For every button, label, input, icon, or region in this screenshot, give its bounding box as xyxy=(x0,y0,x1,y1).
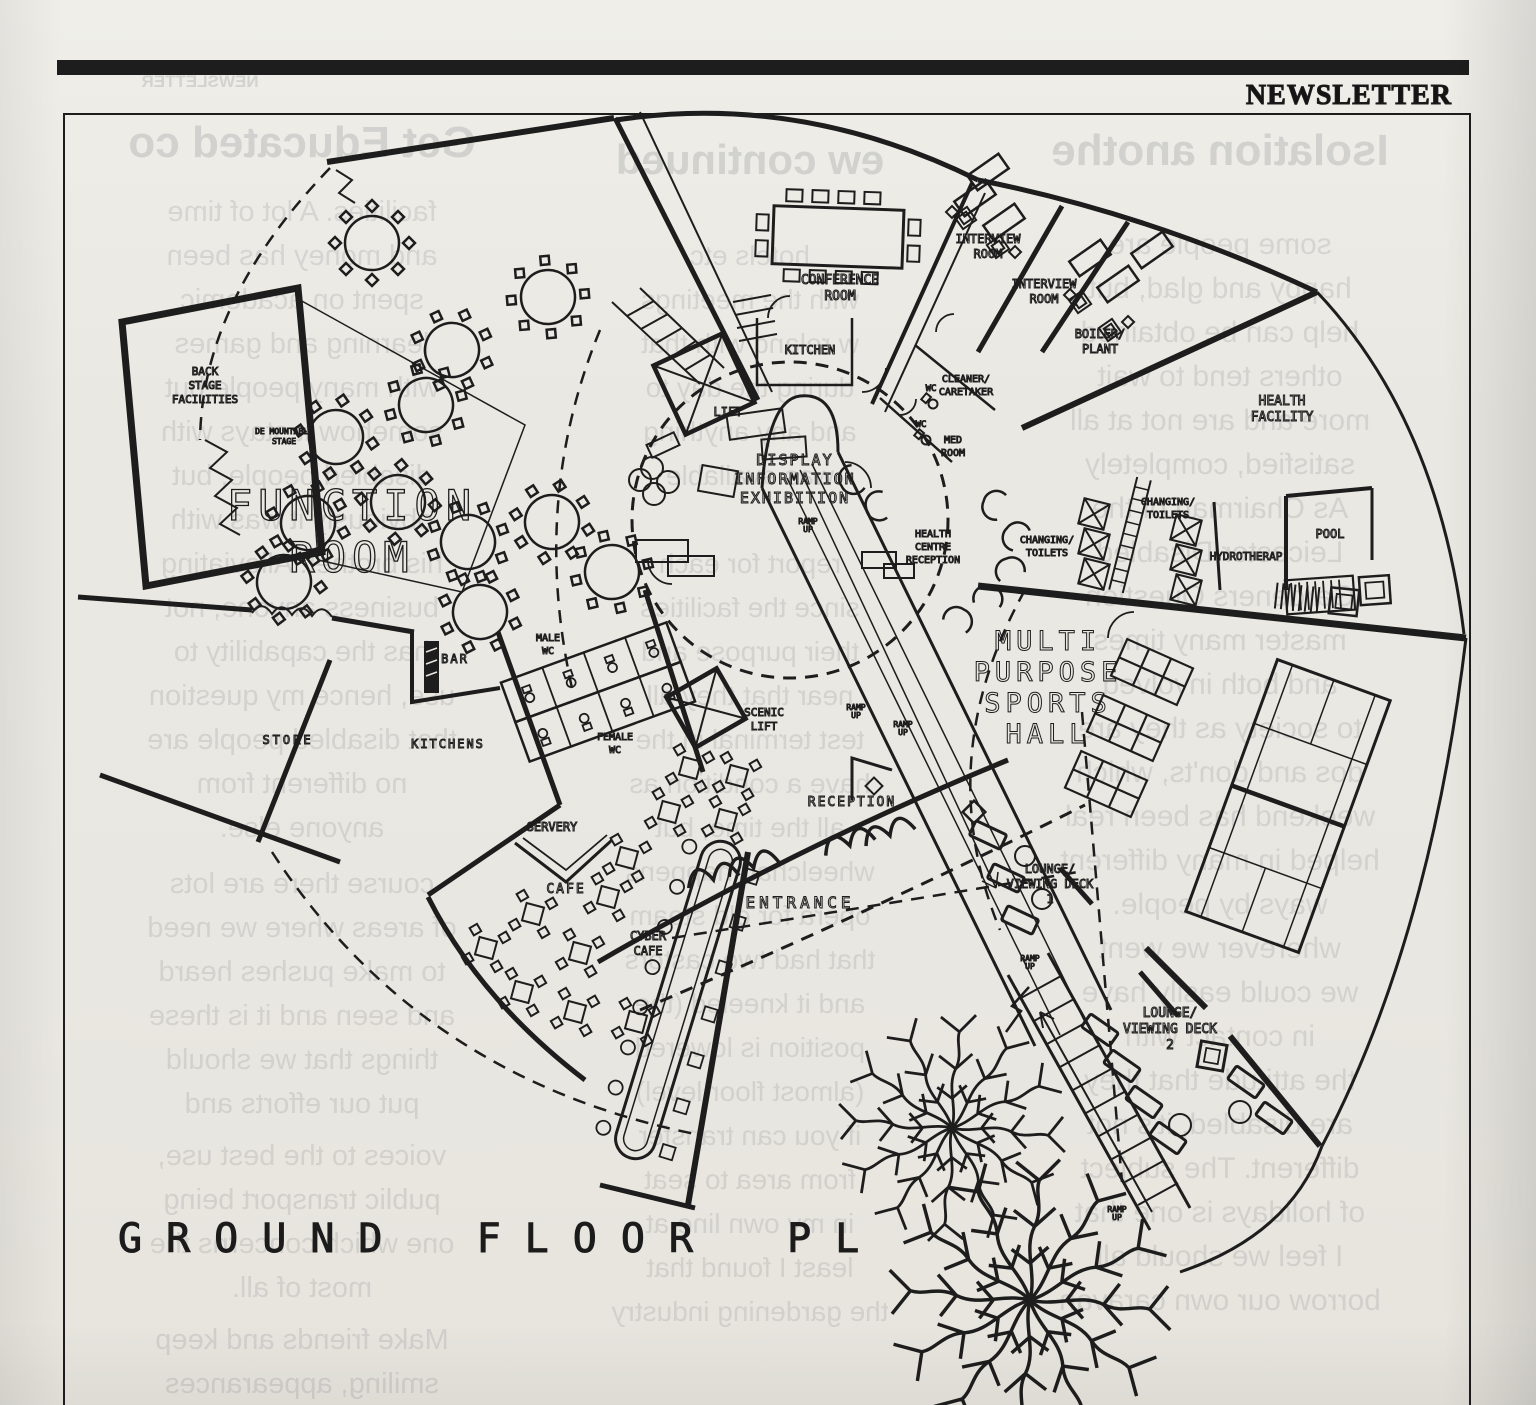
masthead-title: NEWSLETTER xyxy=(1246,80,1452,111)
lift-label: LIFT xyxy=(714,405,743,419)
ramp-up-2-label: RAMPUP xyxy=(846,703,865,720)
floor-plan: NEWSLETTER xyxy=(0,0,1536,1405)
walls xyxy=(78,113,1466,1208)
sports-court xyxy=(1186,660,1390,953)
multi-purpose-sports-hall-label: MULTIPURPOSESPORTSHALL xyxy=(974,626,1123,750)
wc-1-label: WC xyxy=(926,384,937,394)
door-arcs xyxy=(648,296,1134,638)
plan-title: GROUND FLOOR PL xyxy=(118,1216,883,1262)
health-facility-label: HEALTHFACILITY xyxy=(1251,394,1314,425)
med-room-label: MEDROOM xyxy=(941,435,965,459)
kitchens-label: KITCHENS xyxy=(411,737,485,751)
newsletter-page: NEWSLETTERGet Educated cofacilities. A l… xyxy=(0,0,1536,1405)
cyber-cafe-counter xyxy=(591,830,766,1170)
display-information-exhibition-label: DISPLAYINFORMATIONEXHIBITION xyxy=(734,451,855,507)
kitchen-top-label: KITCHEN xyxy=(785,343,836,357)
ramp-up-5-label: RAMPUP xyxy=(1107,1205,1126,1222)
entrance-label: ENTRANCE xyxy=(745,893,854,912)
bar-label: BAR xyxy=(441,652,469,666)
scenic-lift-label: SCENICLIFT xyxy=(744,706,784,733)
hydrotherapy-label: HYDROTHERAP xyxy=(1210,550,1283,563)
ramp-up-4-label: RAMPUP xyxy=(1020,954,1039,971)
interview-room-1-label: INTERVIEWROOM xyxy=(955,232,1021,261)
changing-toilets-1-label: CHANGING/TOILETS xyxy=(1141,497,1195,521)
servery-label: SERVERY xyxy=(527,820,578,834)
ramp-up-3-label: RAMPUP xyxy=(893,720,912,737)
plan-frame xyxy=(64,114,1470,1405)
changing-toilets-2-label: CHANGING/TOILETS xyxy=(1020,535,1074,559)
conference-table xyxy=(754,188,921,286)
male-wc-label: MALEWC xyxy=(536,633,560,657)
tree-icon xyxy=(890,1160,1171,1405)
demountable-stage-label: DE MOUNTABLESTAGE xyxy=(255,427,313,446)
stairs xyxy=(612,288,777,384)
wc-2-label: WC xyxy=(916,420,927,430)
back-stage-facilities-label: BACKSTAGEFACILITIES xyxy=(172,365,238,406)
boiler-plant-label: BOILER/PLANT xyxy=(1075,327,1126,356)
female-wc-label: FEMALEWC xyxy=(597,732,633,756)
reception-counter xyxy=(852,758,892,800)
cyber-cafe-label: CYBERCAFE xyxy=(630,929,667,958)
bar-counter xyxy=(424,641,439,693)
servery-counter xyxy=(515,835,612,882)
function-room-label: FUNCTIONROOM xyxy=(227,481,477,582)
health-centre-reception-label: HEALTHCENTRERECEPTION xyxy=(906,529,960,566)
tree-icon xyxy=(839,1015,1065,1241)
cafe-label: CAFE xyxy=(546,882,585,897)
lounge-viewing-deck-1-label: LOUNGE/VIEWING DECK1 xyxy=(1007,862,1094,906)
pool-label: POOL xyxy=(1316,527,1345,541)
reception-label: RECEPTION xyxy=(808,795,896,810)
lounge-viewing-deck-2-label: LOUNGE/VIEWING DECK2 xyxy=(1123,1006,1217,1053)
ramp-up-1-label: RAMPUP xyxy=(798,517,817,534)
store-label: STORE xyxy=(262,733,313,747)
conference-room-label: CONFERENCEROOM xyxy=(801,273,879,304)
